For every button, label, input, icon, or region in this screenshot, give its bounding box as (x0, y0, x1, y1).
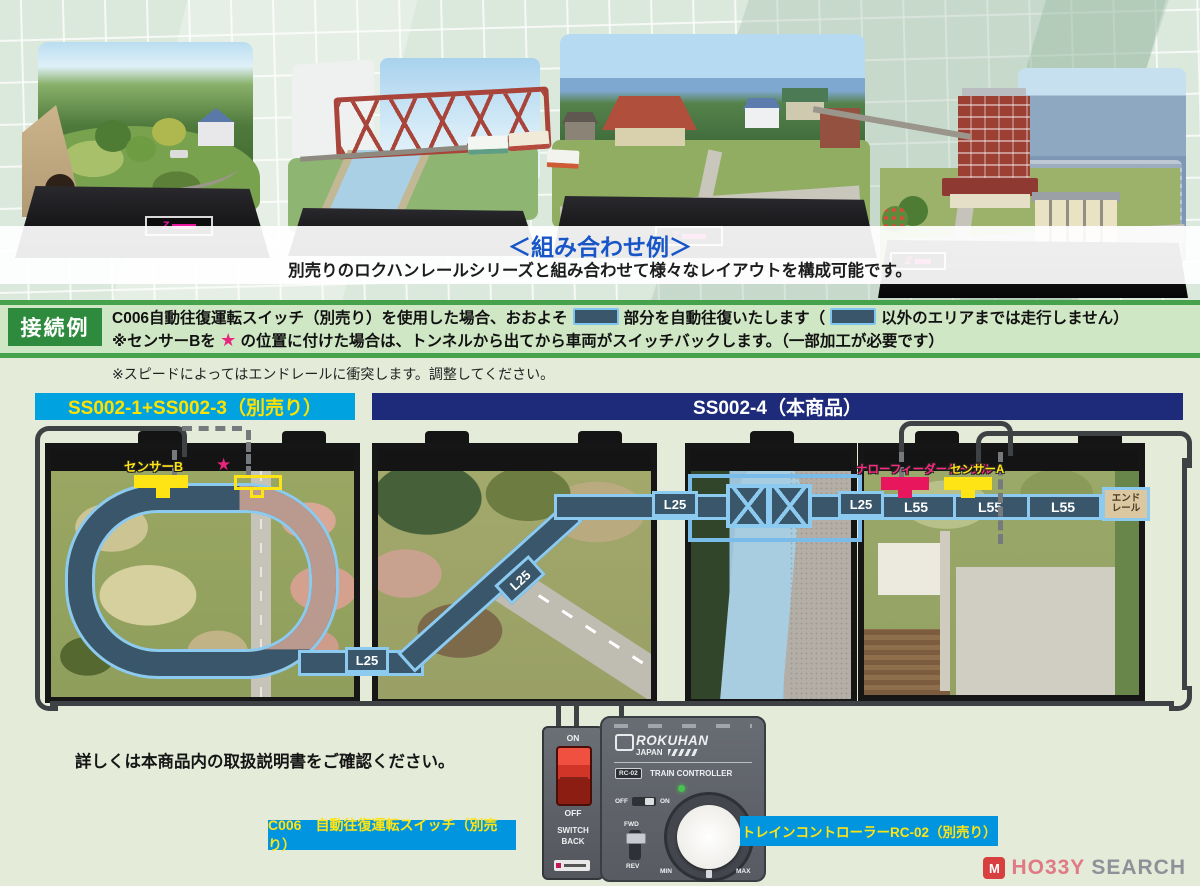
station-body (950, 194, 1030, 208)
switch-on-label: ON (544, 733, 602, 743)
cable-corner-bottom-right (1169, 686, 1192, 711)
line2-pre: ※センサーBを (112, 333, 216, 350)
manual-note: 詳しくは本商品内の取扱説明書をご確認ください。 (75, 748, 455, 772)
cable-bottom-horizontal (50, 701, 1174, 706)
parked-car (170, 150, 188, 158)
sensor-a-stem (961, 490, 975, 498)
brand-sub: JAPAN (636, 748, 663, 757)
cable-corner-bottom-left (35, 686, 58, 711)
label-rc02-text: トレインコントローラーRC-02（別売り） (741, 821, 996, 841)
tree-cluster-yellow (152, 118, 186, 146)
hobbysearch-watermark: M HO33Y SEARCH (983, 856, 1186, 880)
logo-text-bar (564, 864, 586, 867)
header-ss002-1-3: SS002-1+SS002-3（別売り） (35, 393, 355, 420)
track-l25-bridge-left: L25 (652, 491, 698, 517)
fwd-label: FWD (624, 821, 639, 828)
track-l55-2: L55 (953, 497, 1027, 517)
c006-switch-device: ON OFF SWITCH BACK (542, 726, 604, 880)
rev-label: REV (626, 863, 639, 870)
switch-name-line2: BACK (544, 837, 602, 846)
info-line-2: ※センサーBを ★ の位置に付けた場合は、トンネルから出てから車両がスイッチバッ… (112, 329, 1197, 351)
path-light (940, 531, 950, 691)
sensor-a-tab (944, 477, 992, 490)
slide-on-label: ON (660, 798, 670, 805)
greenroof-building (782, 88, 828, 102)
hut-body (565, 122, 595, 140)
track-l55-1: L55 (879, 497, 953, 517)
dashed-branch-top (182, 426, 242, 431)
power-slide-switch (632, 797, 656, 806)
train-car-orange (547, 149, 580, 169)
dial-pointer (706, 870, 712, 878)
feeder-stem (898, 490, 912, 498)
sensor-alt-outline-stem (250, 487, 264, 498)
track-l25-bridge-right: L25 (838, 491, 884, 517)
panel-top-band (691, 449, 851, 471)
white-building (878, 543, 940, 595)
rc02-controller-device: ROKUHAN JAPAN RC-02 TRAIN CONTROLLER OFF… (600, 716, 766, 882)
bluehouse-body (745, 108, 779, 128)
switch-off-label: OFF (544, 808, 602, 818)
line1-mid: 部分を自動往復いたします（ (624, 310, 826, 327)
train-car-green (468, 135, 509, 154)
watermark-hobby: HO33Y (1011, 856, 1085, 880)
watermark-search: SEARCH (1091, 856, 1186, 880)
farmhouse-body (615, 128, 685, 146)
collage-section: Z (0, 0, 1200, 300)
cable-left-vertical (35, 450, 40, 690)
switch-name-line1: SWITCH (544, 826, 602, 835)
power-led (678, 785, 685, 792)
direction-slider-knob (626, 833, 646, 844)
line2-post: の位置に付けた場合は、トンネルから出てから車両がスイッチバックします。（一部加工… (241, 333, 944, 350)
hobbysearch-icon: M (983, 857, 1005, 879)
product-sheet: Z (0, 0, 1200, 886)
dashed-drop-star-sensor (246, 430, 251, 476)
icon-letter: M (989, 861, 1000, 876)
sensor-b-label: センサーB (124, 456, 183, 475)
plaza-pavement (956, 567, 1139, 695)
track-l25-exit: L25 (345, 647, 389, 673)
line1-post: 以外のエリアまでは走行しません） (881, 310, 1129, 327)
panel-top-band (378, 449, 651, 471)
cable-right-vertical (1182, 458, 1187, 690)
controller-type: TRAIN CONTROLLER (650, 769, 732, 778)
info-badge: 接続例 (8, 308, 102, 346)
bridge-girder-x-1 (726, 484, 770, 528)
header-left-label: SS002-1+SS002-3（別売り） (68, 393, 322, 420)
feeder-tab (881, 477, 929, 490)
small-print-row (614, 724, 752, 728)
slide-off-label: OFF (615, 798, 628, 805)
track-l55-3: L55 (1027, 497, 1099, 517)
brand-train-icon (615, 734, 634, 751)
track-main-straight: L55 L55 L55 (554, 494, 1102, 520)
label-c006-text: C006 自動往復運転スイッチ（別売り） (268, 815, 516, 855)
logo-mark (556, 863, 561, 868)
speed-note: ※スピードによってはエンドレールに衝突します。調整してください。 (112, 364, 554, 384)
dial-face (677, 805, 741, 869)
brand-hatch (668, 749, 698, 756)
shuttle-zone-swatch (573, 308, 619, 325)
label-c006-switch: C006 自動往復運転スイッチ（別売り） (268, 820, 516, 850)
line1-pre: C006自動往復運転スイッチ（別売り）を使用した場合、おおよそ (112, 310, 568, 327)
cable-top-left (35, 426, 187, 457)
slide-knob (645, 798, 654, 805)
shuttle-zone-swatch (830, 308, 876, 325)
rocker-groove (560, 777, 588, 779)
star-marker: ★ (216, 455, 231, 475)
bridge-girder-x-2 (768, 484, 812, 528)
end-rail-box: エンド レール (1102, 487, 1150, 521)
info-line-1: C006自動往復運転スイッチ（別売り）を使用した場合、おおよそ部分を自動往復いた… (112, 306, 1197, 328)
brown-field-rows (864, 629, 950, 695)
star-glyph: ★ (220, 330, 236, 350)
house-body (198, 122, 234, 146)
model-badge: RC-02 (615, 768, 642, 779)
min-label: MIN (660, 868, 672, 875)
cable-hook-feeder (899, 421, 1013, 456)
brand-name: ROKUHAN (636, 733, 709, 748)
panel-separator (614, 762, 752, 763)
caption-body: 別売りのロクハンレールシリーズと組み合わせて様々なレイアウトを構成可能です。 (0, 257, 1200, 281)
switch-maker-logo (554, 860, 590, 871)
rocker-switch-red (556, 746, 592, 806)
sensor-a-label: センサーA (950, 461, 1004, 477)
end-rail-line2: レール (1112, 504, 1141, 514)
header-ss002-4: SS002-4（本商品） (372, 393, 1183, 420)
brick-building-tall (958, 96, 1030, 188)
label-rc02-controller: トレインコントローラーRC-02（別売り） (740, 816, 998, 846)
header-right-label: SS002-4（本商品） (693, 393, 862, 420)
max-label: MAX (736, 868, 750, 875)
train-car-red (508, 131, 549, 152)
sensor-b-stem (156, 488, 170, 498)
sensor-b-tab (134, 475, 188, 488)
